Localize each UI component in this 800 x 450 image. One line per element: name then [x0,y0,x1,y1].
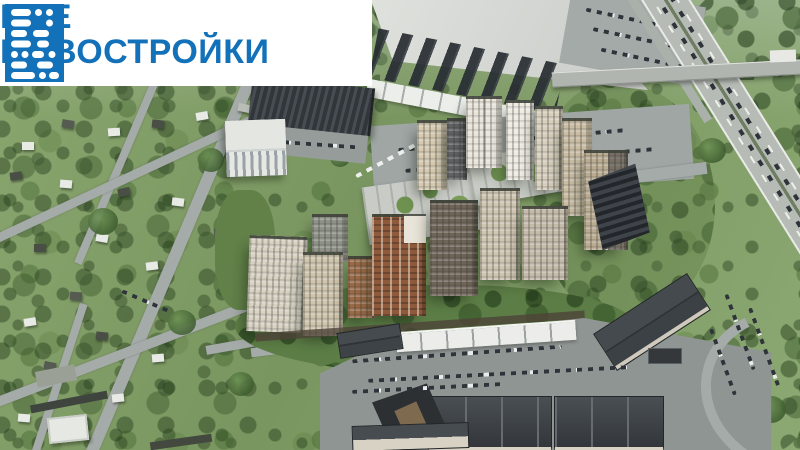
warehouse [554,396,664,450]
tower [303,252,343,336]
house [10,171,23,181]
tower [506,100,534,180]
house [146,261,159,270]
dot-matrix-building-monogram-icon [5,4,64,82]
office-building [225,119,287,177]
tower [522,206,568,280]
house [152,353,165,362]
tower [535,106,563,190]
tower [430,200,478,296]
logo-banner: ВСЕ НОВОСТРОЙКИ [0,0,372,86]
house [96,331,109,340]
house [22,142,34,150]
tree-icon [198,148,224,172]
house [34,244,46,252]
aerial-render: ВСЕ НОВОСТРОЙКИ [0,0,800,450]
house [61,119,74,129]
flat-roof-building [47,414,89,444]
house [112,393,125,402]
tower [417,120,447,190]
warehouse [352,422,470,450]
tower [480,188,520,280]
tree-icon [168,310,196,335]
house [152,119,165,128]
house [70,292,83,301]
small-building [770,50,796,63]
house [18,413,31,422]
tower-white-corner [404,214,426,243]
tree-icon [88,208,118,235]
tree-icon [698,138,726,163]
kiosk [648,348,682,364]
tower [246,235,307,333]
tower-pair [466,96,502,168]
brown-tower [372,214,426,316]
tree-icon [228,372,254,396]
house [60,179,73,188]
tower [447,118,467,180]
house [172,197,185,206]
house [108,128,121,137]
